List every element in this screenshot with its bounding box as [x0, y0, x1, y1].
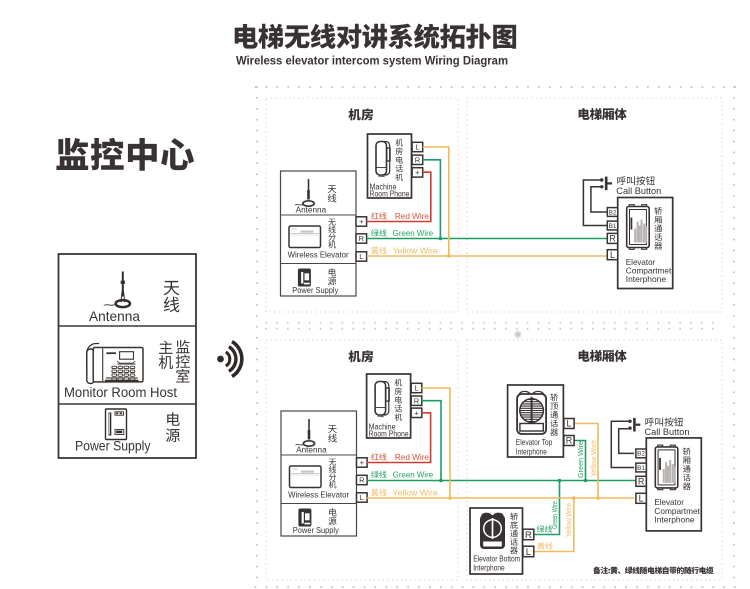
svg-text:L: L: [414, 384, 418, 393]
svg-text:R: R: [566, 436, 573, 446]
svg-text:Power Supply: Power Supply: [292, 285, 339, 295]
svg-text:Antenna: Antenna: [89, 309, 140, 324]
svg-text:Interphone: Interphone: [626, 275, 667, 284]
svg-text:Yellow Wire: Yellow Wire: [393, 489, 438, 498]
svg-text:L: L: [360, 493, 364, 502]
svg-text:Green Wire: Green Wire: [550, 501, 559, 529]
svg-text:Power Supply: Power Supply: [75, 439, 151, 454]
svg-text:L: L: [639, 494, 644, 504]
svg-text:Yellow Wire: Yellow Wire: [393, 247, 438, 256]
svg-text:B1: B1: [609, 223, 617, 230]
svg-text:Compartmet: Compartmet: [654, 507, 700, 516]
svg-text:Interphone: Interphone: [654, 516, 695, 525]
svg-text:Yellow Wire: Yellow Wire: [564, 503, 573, 537]
svg-text:Green Wire: Green Wire: [393, 229, 434, 238]
svg-text:Red Wire: Red Wire: [395, 212, 429, 221]
svg-text:Elevator: Elevator: [654, 498, 684, 507]
svg-text:B2: B2: [609, 209, 617, 216]
svg-text:R: R: [525, 530, 532, 541]
svg-text:B1: B1: [637, 465, 645, 472]
svg-text:L: L: [566, 419, 571, 429]
svg-text:Room Phone: Room Phone: [369, 430, 409, 439]
svg-text:L: L: [359, 252, 363, 261]
svg-text:L: L: [526, 547, 531, 558]
svg-text:Wireless Elevator: Wireless Elevator: [288, 490, 349, 500]
svg-text:+: +: [359, 217, 364, 226]
svg-text:Red Wire: Red Wire: [395, 453, 429, 462]
svg-text:Wireless elevator intercom sys: Wireless elevator intercom system Wiring…: [236, 54, 508, 68]
svg-text:Elevator: Elevator: [626, 258, 656, 267]
svg-text:Antenna: Antenna: [296, 205, 327, 215]
svg-text:R: R: [359, 476, 365, 485]
svg-text:R: R: [609, 234, 616, 244]
svg-text:Wireless Elevator: Wireless Elevator: [288, 250, 349, 260]
svg-text:Interphone: Interphone: [516, 447, 547, 456]
svg-text:B2: B2: [637, 451, 645, 458]
svg-text:Call Button: Call Button: [645, 427, 690, 438]
svg-text:L: L: [610, 250, 615, 260]
svg-text:+: +: [415, 168, 420, 177]
svg-text:Elevator Top: Elevator Top: [516, 438, 553, 447]
svg-text:Call Button: Call Button: [616, 186, 661, 197]
svg-text:Power Supply: Power Supply: [293, 525, 340, 535]
svg-text:+: +: [414, 409, 419, 418]
svg-text:R: R: [414, 396, 420, 405]
svg-text:Yellow Wire: Yellow Wire: [589, 440, 598, 477]
svg-text:Monitor Room Host: Monitor Room Host: [64, 385, 177, 400]
svg-text:R: R: [359, 234, 365, 243]
svg-text:Elevator Bottom: Elevator Bottom: [473, 554, 520, 563]
svg-text:L: L: [415, 143, 419, 152]
svg-text:Interphone: Interphone: [473, 564, 505, 573]
svg-text:R: R: [415, 156, 421, 165]
svg-text:Green Wire: Green Wire: [576, 441, 585, 478]
svg-text:Antenna: Antenna: [296, 445, 327, 455]
svg-text:Green Wire: Green Wire: [393, 471, 434, 480]
svg-text:R: R: [638, 477, 645, 487]
svg-text:Room Phone: Room Phone: [370, 190, 410, 199]
svg-text:+: +: [360, 458, 365, 467]
svg-text:Compartmet: Compartmet: [626, 267, 672, 276]
